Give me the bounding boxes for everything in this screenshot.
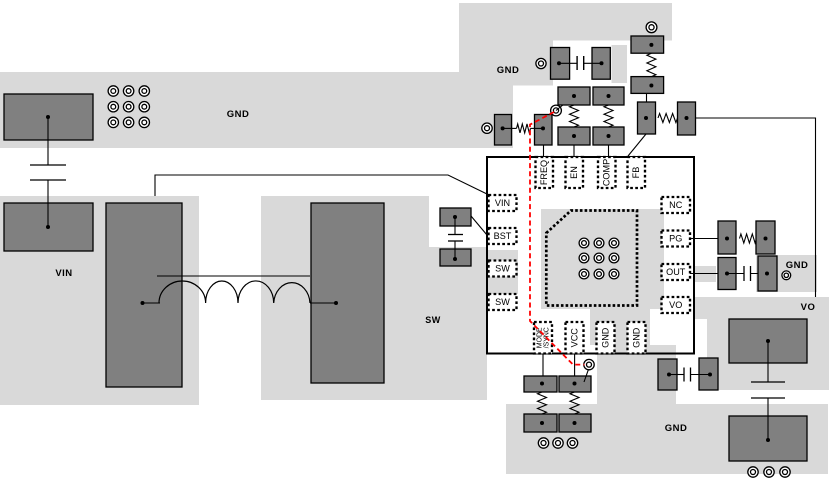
- svg-text:SW: SW: [495, 297, 510, 307]
- svg-text:GND: GND: [665, 423, 688, 434]
- svg-text:VIN: VIN: [495, 198, 510, 208]
- svg-text:FB: FB: [631, 167, 641, 179]
- svg-text:SW: SW: [495, 264, 510, 274]
- svg-text:SW: SW: [425, 315, 441, 325]
- svg-text:EN: EN: [569, 166, 579, 179]
- svg-text:GND: GND: [497, 65, 520, 76]
- svg-text:GND: GND: [631, 327, 641, 348]
- svg-text:BST: BST: [494, 231, 512, 241]
- svg-text:OUT: OUT: [666, 267, 686, 277]
- svg-text:FREQ: FREQ: [539, 160, 549, 185]
- svg-text:GND: GND: [600, 327, 610, 348]
- svg-text:NC: NC: [669, 200, 683, 210]
- svg-text:VO: VO: [669, 300, 682, 310]
- svg-text:GND: GND: [786, 260, 809, 271]
- svg-text:VO: VO: [801, 302, 816, 313]
- svg-text:GND: GND: [227, 109, 250, 120]
- svg-text:COMP: COMP: [602, 159, 612, 186]
- svg-text:PG: PG: [669, 234, 682, 244]
- svg-text:VIN: VIN: [55, 268, 72, 279]
- svg-text:VCC: VCC: [569, 328, 579, 348]
- svg-text:MODE/SYNC: MODE/SYNC: [537, 327, 551, 348]
